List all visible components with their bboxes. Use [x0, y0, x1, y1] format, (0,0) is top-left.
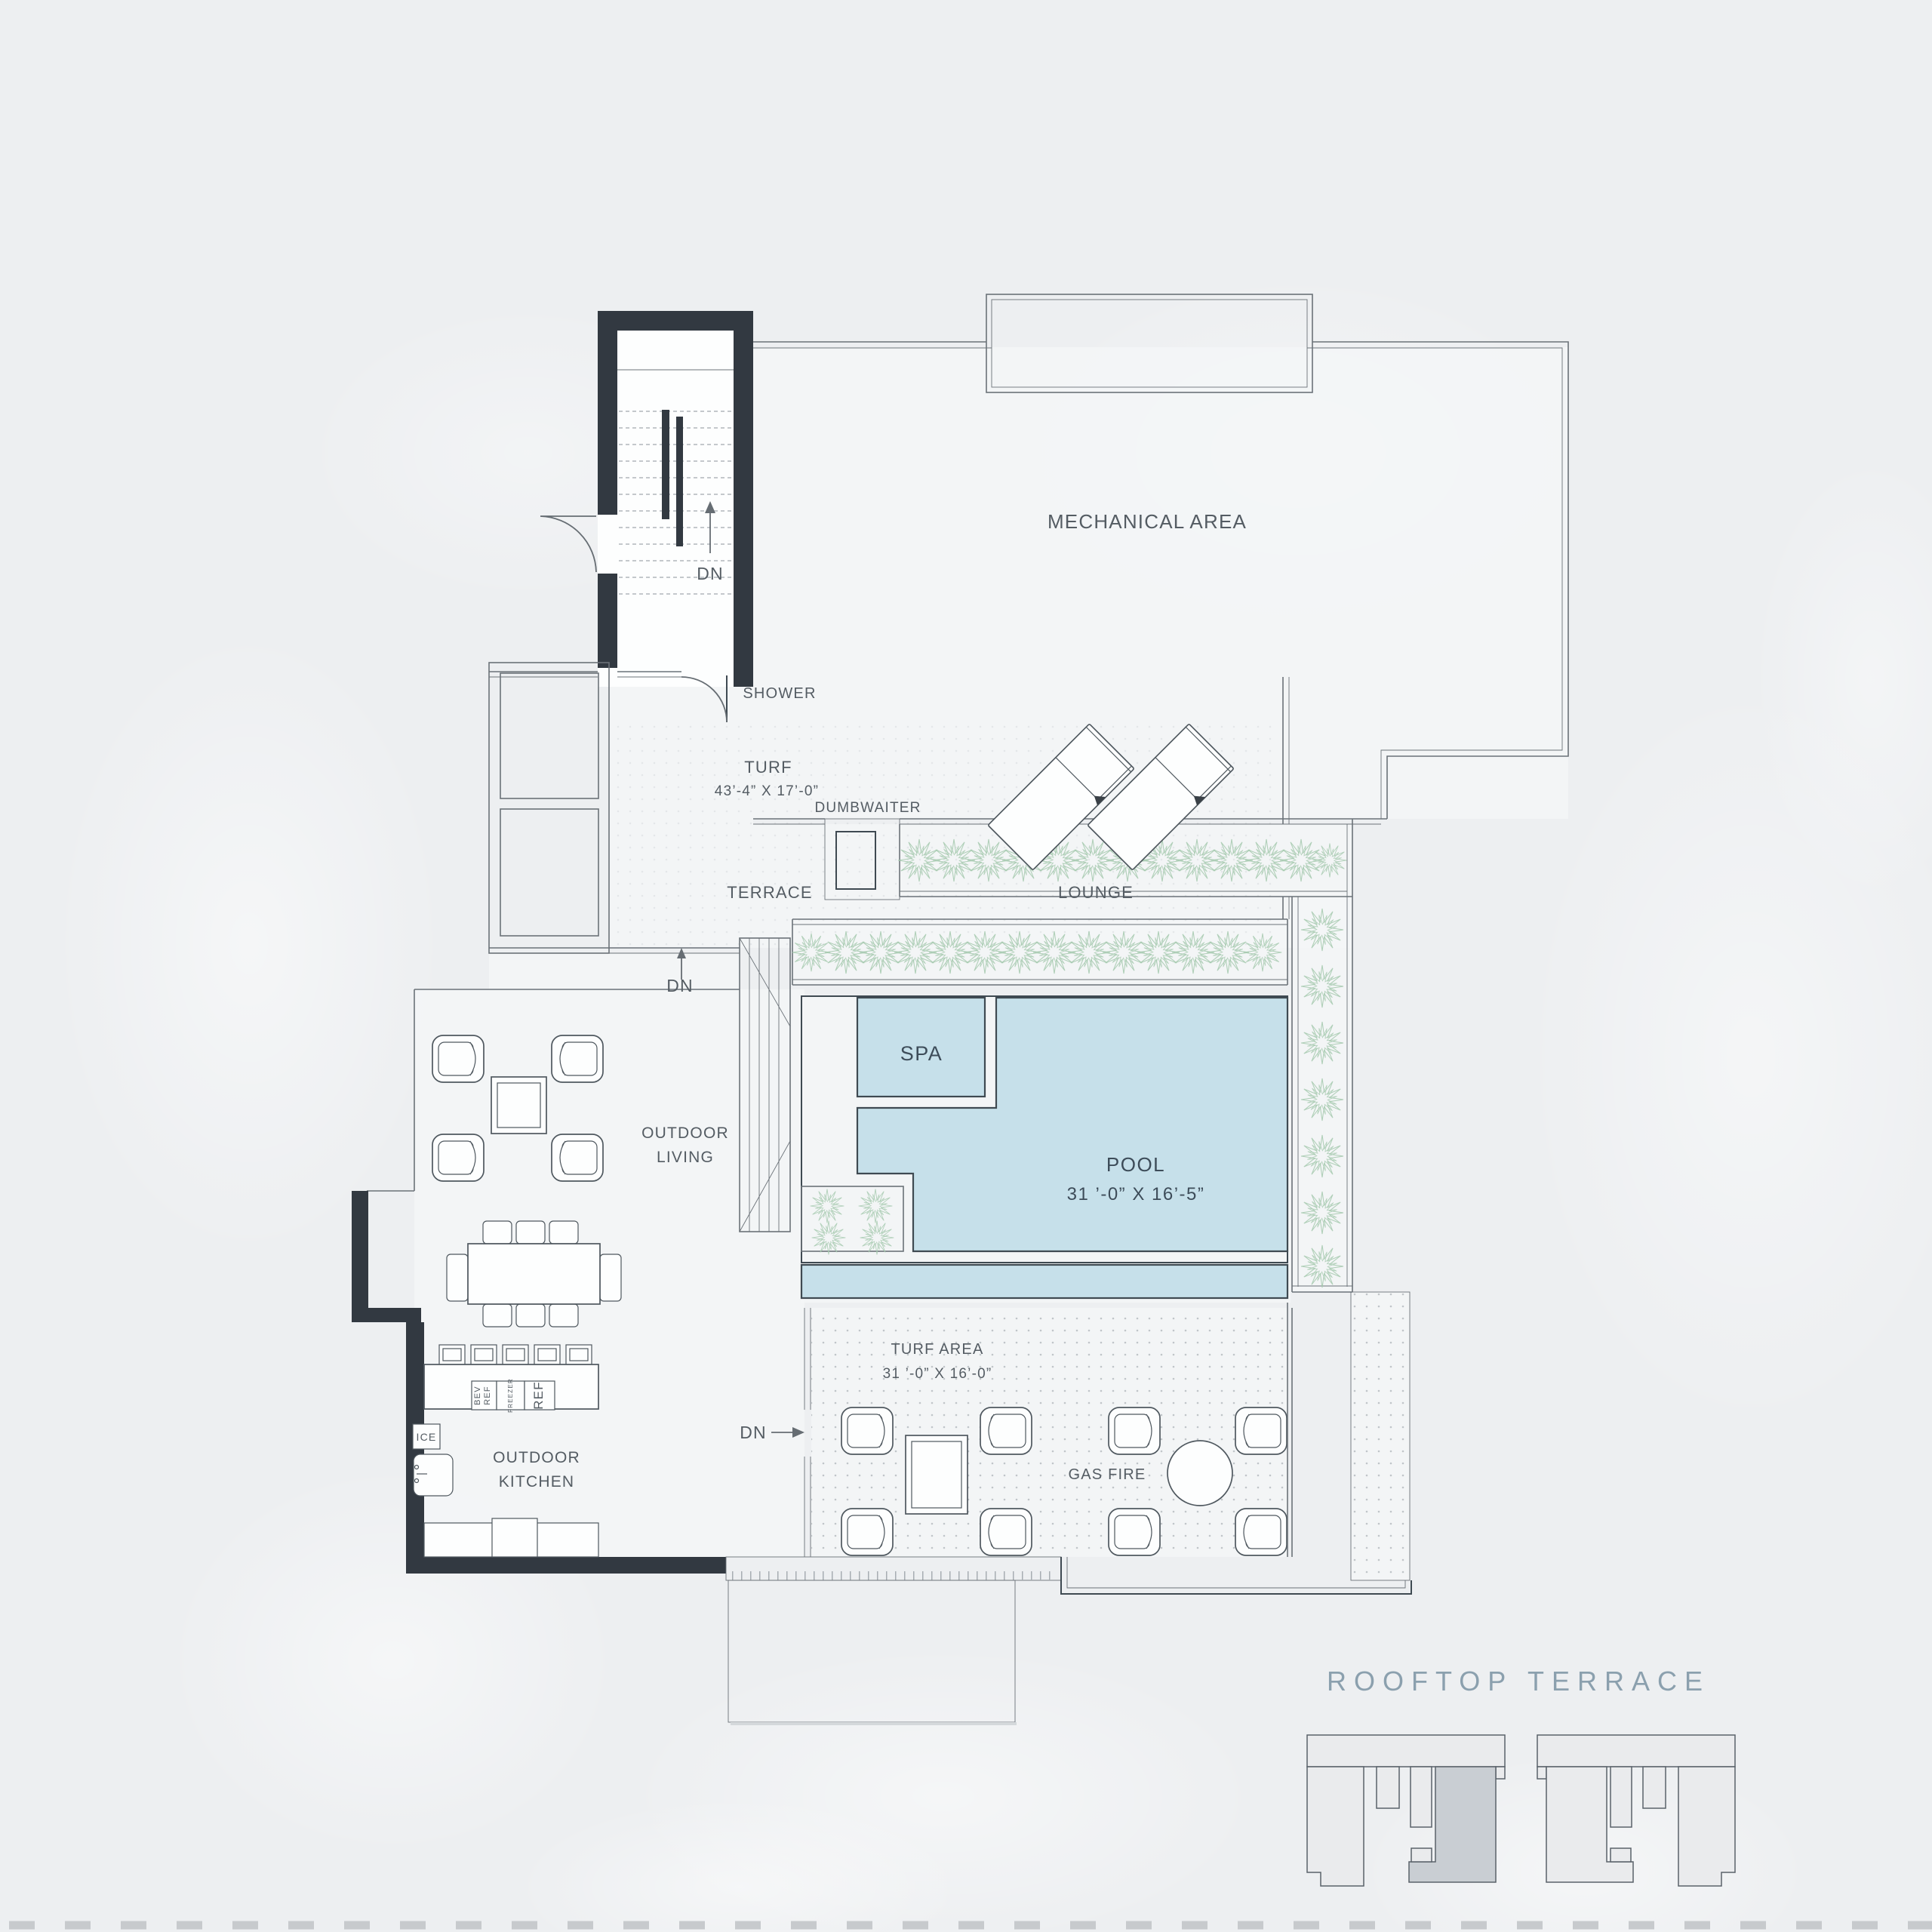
gas-fire-label: GAS FIRE: [1069, 1466, 1146, 1483]
outdoor-kitchen-label-1: OUTDOOR: [493, 1449, 580, 1466]
dn-kitchen-label: DN: [740, 1423, 767, 1442]
dumbwaiter-label: DUMBWAITER: [814, 800, 921, 816]
ice-label: ICE: [417, 1431, 437, 1443]
sink: [414, 1454, 453, 1496]
pool-dims-label: 31 ’-0” X 16’-5”: [1067, 1184, 1205, 1204]
pool-label: POOL: [1106, 1153, 1165, 1176]
turf-area-label: TURF AREA: [891, 1341, 983, 1358]
turf-label: TURF: [744, 758, 792, 777]
water-feature-strip: [801, 1265, 1287, 1298]
bev-ref-label: REF: [483, 1386, 492, 1405]
dn-landing-label: DN: [666, 976, 694, 995]
stair-rail: [662, 410, 669, 519]
spa-label: SPA: [900, 1042, 943, 1065]
bev-label: BEV: [473, 1386, 482, 1405]
page-title: ROOFTOP TERRACE: [1327, 1666, 1710, 1697]
lounge-label: LOUNGE: [1058, 883, 1134, 902]
freezer-label: FREEZER: [507, 1378, 514, 1413]
dining-table: [468, 1244, 600, 1304]
outdoor-kitchen-label-2: KITCHEN: [499, 1473, 575, 1491]
turf-area-dims-label: 31 ’-0” X 16’-0”: [883, 1366, 992, 1382]
dn-stairs-label: DN: [697, 564, 724, 583]
outdoor-living-label-1: OUTDOOR: [641, 1124, 729, 1142]
gas-fire-pit: [1168, 1441, 1232, 1506]
rooftop-terrace-floor-plan: MECHANICAL AREA DUMBWAITER SHOWER TURF 4…: [0, 0, 1932, 1932]
mechanical-area-label: MECHANICAL AREA: [1048, 510, 1247, 533]
ref-label: REF: [531, 1381, 546, 1410]
terrace-label: TERRACE: [727, 883, 813, 902]
outdoor-living-label-2: LIVING: [657, 1149, 714, 1166]
grill: [492, 1518, 537, 1557]
turf-dims-label: 43’-4” X 17’-0”: [715, 783, 819, 799]
shower-label: SHOWER: [743, 685, 816, 702]
